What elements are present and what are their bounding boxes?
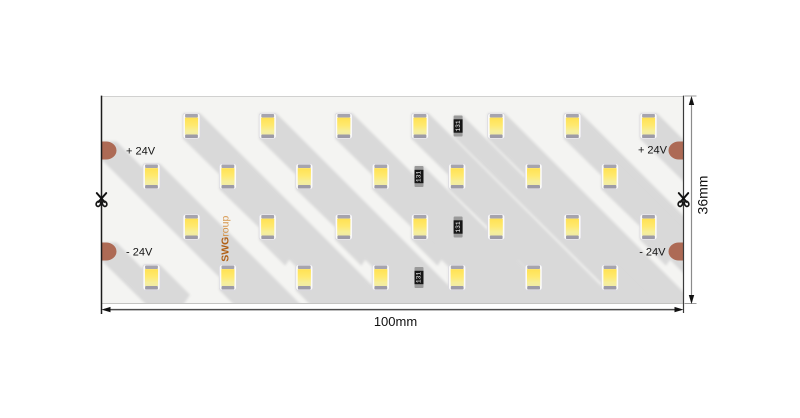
svg-text:- 24V: - 24V [639, 247, 666, 259]
svg-text:36mm: 36mm [695, 176, 711, 215]
svg-text:+ 24V: + 24V [126, 146, 156, 158]
svg-text:100mm: 100mm [374, 314, 417, 329]
svg-text:+ 24V: + 24V [638, 145, 668, 157]
svg-text:SWGroup: SWGroup [220, 216, 232, 262]
svg-text:- 24V: - 24V [126, 247, 153, 259]
